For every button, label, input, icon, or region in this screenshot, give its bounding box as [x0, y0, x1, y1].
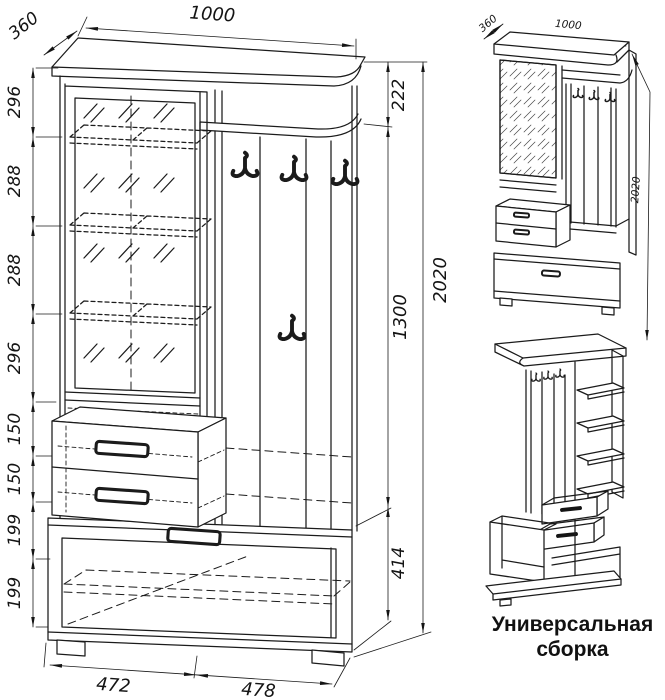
dim-left-0: 296	[5, 86, 25, 119]
dim-right-1: 1300	[390, 294, 411, 340]
drawer-handle	[514, 230, 529, 235]
dim-bottom-left: 472	[96, 674, 132, 697]
open-shelves	[577, 383, 624, 498]
coat-hook	[573, 89, 583, 98]
door-handle	[542, 270, 560, 276]
dim-right-2: 414	[389, 547, 409, 579]
dim-top-depth: 360	[5, 8, 43, 44]
assembly-caption: Универсальная сборка	[480, 612, 665, 662]
technical-drawing-sheet: 1000 360 296 288 288 296 150 150 199 199…	[0, 0, 665, 700]
coat-hook	[233, 153, 258, 176]
drawer-handle	[96, 441, 149, 457]
hidden-shelves	[70, 125, 211, 325]
isometric-open-view	[480, 330, 665, 620]
dim-left-1: 288	[5, 165, 25, 198]
foot	[312, 650, 344, 666]
dim-left-3: 296	[5, 342, 25, 375]
dim-total-height: 2020	[430, 257, 451, 303]
iso-furniture	[494, 32, 636, 315]
dim-left-6: 199	[5, 514, 25, 546]
isometric-assembled-view: 360 1000 2020	[480, 10, 665, 350]
coat-hook	[280, 316, 305, 339]
iso-mirror	[500, 60, 556, 178]
assembly-caption-line1: Универсальная	[480, 612, 665, 637]
foot	[602, 307, 614, 315]
coat-hook	[333, 161, 358, 184]
main-projection-view: 1000 360 296 288 288 296 150 150 199 199…	[0, 0, 480, 700]
coat-hook	[605, 93, 615, 102]
foot	[500, 298, 512, 306]
foot	[500, 599, 511, 606]
dim-right-0: 222	[389, 79, 409, 111]
dim-left-7: 199	[5, 577, 25, 609]
assembly-caption-line2: сборка	[480, 637, 665, 662]
dim-top-width: 1000	[189, 2, 236, 26]
iso-dim-width: 1000	[554, 18, 582, 32]
coat-hook	[589, 91, 599, 100]
dim-bottom-right: 478	[241, 679, 277, 700]
coat-hook	[532, 373, 541, 381]
coat-hook	[556, 369, 565, 377]
lower-cabinet	[48, 518, 352, 666]
door-handle	[168, 528, 221, 545]
drawer-handle	[514, 213, 529, 218]
iso-open-furniture	[486, 334, 626, 606]
coat-hook	[282, 157, 307, 180]
canopy-top-shelf	[52, 38, 365, 86]
drawer-handle	[96, 488, 149, 504]
dim-left-5: 150	[5, 463, 25, 495]
hall-unit-front-drawing	[48, 38, 365, 666]
dim-left-2: 288	[5, 254, 25, 287]
foot	[57, 640, 85, 656]
drawer-unit	[52, 407, 226, 527]
iso-dim-depth: 360	[477, 12, 500, 34]
dim-left-4: 150	[5, 413, 25, 445]
coat-hook	[544, 371, 553, 379]
